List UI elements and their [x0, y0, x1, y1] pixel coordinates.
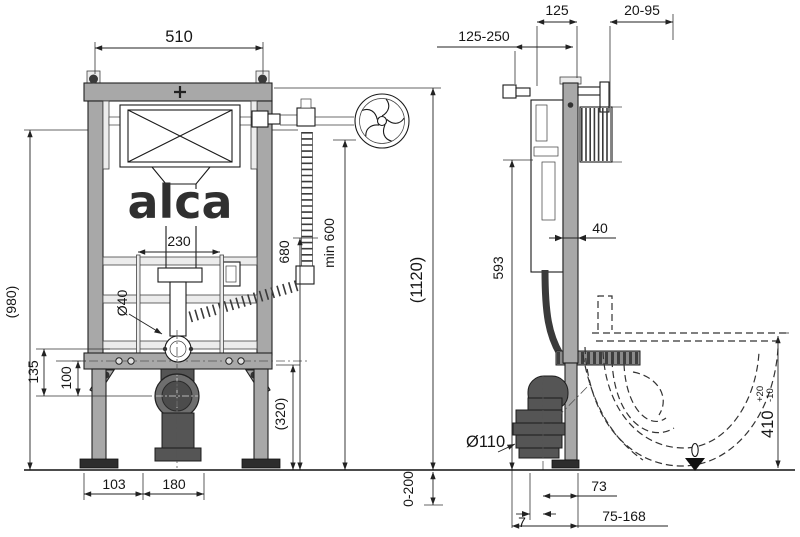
dim-410-tol-minus: -10: [765, 388, 776, 402]
flush-valve-top: [534, 147, 558, 156]
dim-125-label: 125: [545, 2, 569, 18]
foot-plate-side: [552, 460, 579, 468]
drain-column: [162, 413, 194, 450]
crossbar-bolt3: [226, 358, 232, 364]
dim-980-label: (980): [3, 286, 19, 319]
dim-103-label: 103: [102, 476, 126, 492]
plate-tab-right: [240, 117, 251, 125]
inlet-stub-b: [516, 88, 530, 96]
foot-left: [92, 369, 106, 460]
drain-collar: [155, 448, 201, 461]
dim-7-arrow-r: [543, 511, 551, 517]
threaded-rod-left: [137, 255, 141, 353]
drain-socket-1: [516, 410, 562, 423]
dim-135-label: 135: [25, 360, 41, 384]
angle-valve-nut: [268, 114, 280, 124]
crossbar-bolt1: [116, 358, 122, 364]
cistern-side-inlet-inner: [226, 266, 236, 282]
label-dia40: Ø40: [114, 290, 130, 317]
frame-post-side: [563, 83, 578, 363]
corrugated-elbow: [296, 266, 314, 284]
dim-2095-label: 20-95: [624, 2, 660, 18]
corner-screw-left: [89, 75, 98, 84]
technical-drawing-page: alca: [0, 0, 800, 537]
leader-dia40: [129, 314, 162, 334]
tap-wheel-icon: [355, 94, 409, 148]
fitting-40-outer: [165, 336, 191, 362]
post-bolt-side: [568, 102, 574, 108]
fill-valve: [536, 105, 547, 141]
dim-593-label: 593: [490, 256, 506, 280]
dim-7-label: 7: [518, 514, 526, 530]
toilet-bowl-outline: [583, 296, 786, 466]
plate-tab-left: [109, 117, 120, 125]
dim-410-label: 410: [759, 410, 777, 438]
corner-screw-right: [258, 75, 267, 84]
label-dia110: Ø110: [466, 433, 505, 451]
threaded-rod-right: [220, 255, 224, 353]
dim-680-label: 680: [276, 240, 292, 264]
dim-320-label: (320): [272, 398, 288, 431]
supply-stub: [301, 99, 311, 108]
dim-100-label: 100: [58, 366, 74, 390]
dim-125250-label: 125-250: [458, 28, 510, 44]
front-view: alca: [24, 71, 409, 468]
dim-73-label: 73: [591, 478, 607, 494]
dim-40-arrow-r: [578, 235, 586, 241]
inlet-stub-a: [503, 85, 516, 98]
foot-side: [565, 363, 577, 460]
angle-valve-body: [252, 111, 268, 127]
foot-right: [254, 369, 268, 460]
dim-75168-label: 75-168: [602, 508, 646, 524]
foot-plate-left: [80, 459, 118, 468]
plate-rail-left: [103, 101, 109, 169]
flush-valve-body: [542, 162, 555, 220]
drain-direction-stem: [692, 444, 698, 457]
drain-socket-4: [519, 448, 559, 458]
drain-direction-arrow-icon: [685, 458, 705, 471]
supply-elbow-top: [297, 108, 315, 126]
dim-230-label: 230: [167, 233, 191, 249]
frame-post-left: [88, 101, 103, 355]
crossbar-bolt2: [128, 358, 134, 364]
dim-180-label: 180: [162, 476, 186, 492]
dim-40-label: 40: [592, 220, 608, 236]
wc-frame-drawing: alca: [0, 0, 800, 537]
dim-1120-label: (1120): [408, 257, 426, 303]
foot-plate-right: [242, 459, 280, 468]
flush-pipe-lower: [170, 282, 186, 336]
flush-bend-side: [545, 270, 560, 354]
flush-pipe-flare: [158, 268, 202, 282]
fitting-40-boltL: [163, 347, 167, 351]
side-view: [503, 77, 786, 471]
drain-socket-3: [516, 435, 562, 448]
drain-socket-2: [513, 423, 565, 435]
dim-min600-label: min 600: [321, 218, 337, 268]
brand-logo: alca: [127, 175, 232, 229]
side-dimensions: 125 20-95 125-250 40 593 Ø110 410 +20 -1…: [437, 2, 789, 530]
dim-510-label: 510: [165, 28, 193, 46]
fitting-40-boltR: [189, 347, 193, 351]
dim-0-200-label: 0-200: [400, 471, 416, 507]
frame-post-right: [257, 101, 272, 355]
crossbar-bolt4: [238, 358, 244, 364]
